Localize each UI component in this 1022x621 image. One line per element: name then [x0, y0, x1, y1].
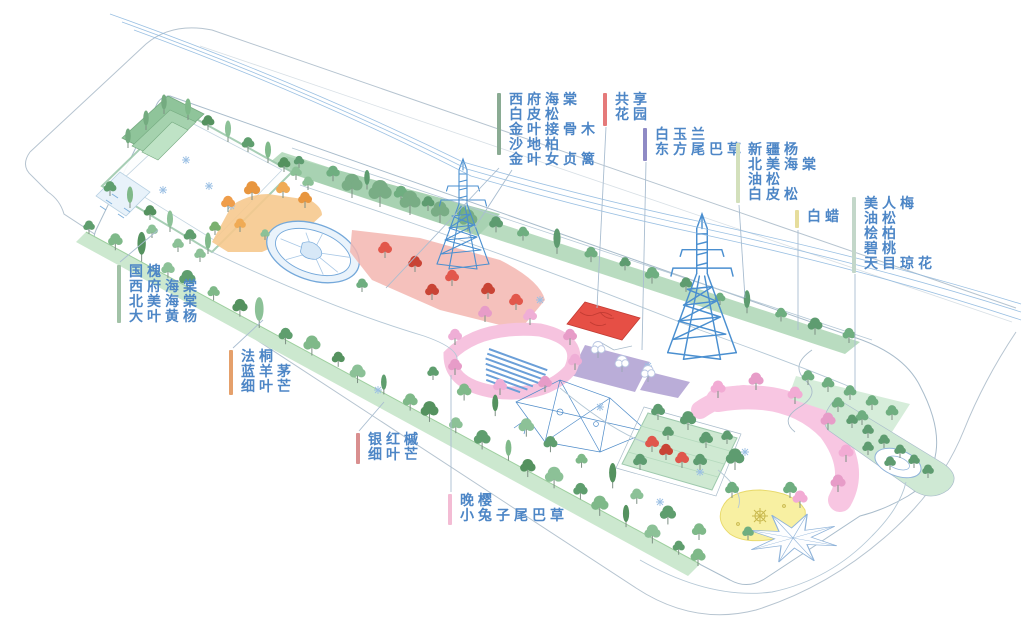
label-text-column: 美人梅油松桧柏碧桃天目琼花 [864, 197, 936, 272]
label-color-bar [603, 93, 607, 126]
label-color-bar [736, 143, 740, 203]
label-text-column: 新疆杨北美海棠油松白皮松 [748, 143, 820, 203]
label-text-column: 银红槭细叶芒 [368, 433, 422, 463]
plant-name-text: 油松 [864, 212, 936, 227]
label-text-column: 国槐西府海棠北美海棠大叶黄杨 [129, 265, 201, 325]
plant-label-poplar: 新疆杨北美海棠油松白皮松 [736, 143, 820, 203]
plant-name-text: 桧柏 [864, 227, 936, 242]
plant-name-text: 金叶女贞篱 [509, 153, 599, 168]
label-text-column: 白玉兰东方尾巴草 [655, 128, 745, 158]
plant-name-text: 油松 [748, 173, 820, 188]
plant-name-text: 法桐 [241, 350, 295, 365]
plant-name-text: 白蜡 [807, 210, 843, 225]
label-color-bar [795, 210, 799, 228]
label-color-bar [497, 93, 501, 155]
label-text-column: 白蜡 [807, 210, 843, 225]
plant-name-text: 东方尾巴草 [655, 143, 745, 158]
plant-name-text: 共享 [615, 93, 651, 108]
plant-name-text: 西府海棠 [509, 93, 599, 108]
label-text-column: 西府海棠白皮松金叶接骨木沙地柏金叶女贞篱 [509, 93, 599, 168]
plant-label-shared-garden: 共享花园 [603, 93, 651, 126]
plant-name-text: 碧桃 [864, 242, 936, 257]
label-color-bar [852, 197, 856, 273]
park-plan-page: 西府海棠白皮松金叶接骨木沙地柏金叶女贞篱共享花园白玉兰东方尾巴草新疆杨北美海棠油… [0, 0, 1022, 621]
plant-label-pagoda: 国槐西府海棠北美海棠大叶黄杨 [117, 265, 201, 325]
plant-name-text: 北美海棠 [129, 295, 201, 310]
plant-name-text: 细叶芒 [368, 448, 422, 463]
plant-name-text: 小兔子尾巴草 [460, 509, 568, 524]
plant-name-text: 北美海棠 [748, 158, 820, 173]
plant-name-text: 西府海棠 [129, 280, 201, 295]
plant-name-text: 银红槭 [368, 433, 422, 448]
plant-name-text: 天目琼花 [864, 257, 936, 272]
plant-label-magnolia: 白玉兰东方尾巴草 [643, 128, 745, 161]
plant-name-text: 花园 [615, 108, 651, 123]
label-text-column: 晚樱小兔子尾巴草 [460, 494, 568, 524]
label-color-bar [356, 433, 360, 464]
plant-name-text: 白皮松 [748, 188, 820, 203]
label-text-column: 共享花园 [615, 93, 651, 123]
plant-name-text: 国槐 [129, 265, 201, 280]
plant-name-text: 蓝羊茅 [241, 365, 295, 380]
plant-label-maple: 银红槭细叶芒 [356, 433, 422, 464]
plant-label-ash: 白蜡 [795, 210, 843, 228]
label-color-bar [229, 350, 233, 395]
plant-name-text: 新疆杨 [748, 143, 820, 158]
plant-label-plum: 美人梅油松桧柏碧桃天目琼花 [852, 197, 936, 273]
label-text-column: 法桐蓝羊茅细叶芒 [241, 350, 295, 395]
label-color-bar [643, 128, 647, 161]
plant-name-text: 美人梅 [864, 197, 936, 212]
plant-name-text: 白玉兰 [655, 128, 745, 143]
plant-name-text: 晚樱 [460, 494, 568, 509]
label-color-bar [117, 265, 121, 323]
plant-name-text: 细叶芒 [241, 380, 295, 395]
plant-label-crabapple: 西府海棠白皮松金叶接骨木沙地柏金叶女贞篱 [497, 93, 599, 168]
plant-name-text: 沙地柏 [509, 138, 599, 153]
plant-label-cherry: 晚樱小兔子尾巴草 [448, 494, 568, 525]
plant-name-text: 大叶黄杨 [129, 310, 201, 325]
plant-name-text: 金叶接骨木 [509, 123, 599, 138]
label-color-bar [448, 494, 452, 525]
plant-name-text: 白皮松 [509, 108, 599, 123]
plant-label-platanus: 法桐蓝羊茅细叶芒 [229, 350, 295, 395]
